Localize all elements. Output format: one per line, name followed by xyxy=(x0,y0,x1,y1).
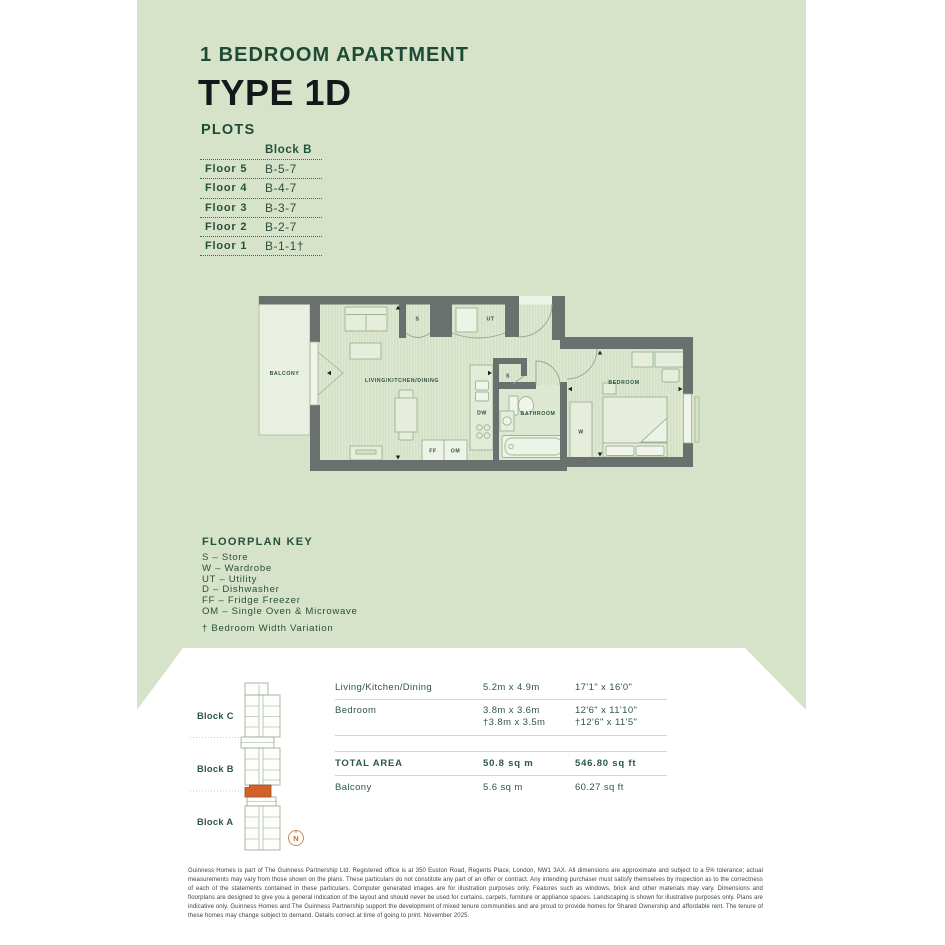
table-row: Floor 3 B-3-7 xyxy=(200,199,322,218)
balcony-door xyxy=(310,342,318,405)
apartment-subtitle: 1 BEDROOM APARTMENT xyxy=(200,44,469,67)
sink-bowl xyxy=(476,392,489,401)
table-row: Bedroom 3.8m x 3.6m †3.8m x 3.5m 12'6" x… xyxy=(335,700,667,736)
bedroom-label: BEDROOM xyxy=(608,380,639,386)
metric-line-1: 3.8m x 3.6m xyxy=(483,705,575,717)
imperial-dimension: 17'1" x 16'0" xyxy=(575,682,667,693)
coffee-table xyxy=(350,343,381,359)
imperial-dimension: 12'6" x 11'10" †12'6" x 11'5" xyxy=(575,705,667,729)
floor-label: Floor 4 xyxy=(200,182,265,194)
oven-microwave-label: OM xyxy=(451,449,461,455)
bathroom-label: BATHROOM xyxy=(521,411,556,417)
room-name: Living/Kitchen/Dining xyxy=(335,682,483,693)
balcony-imperial: 60.27 sq ft xyxy=(575,782,667,793)
metric-line-2: †3.8m x 3.5m xyxy=(483,717,575,729)
floor-label: Floor 1 xyxy=(200,240,265,252)
floor-label: Floor 2 xyxy=(200,221,265,233)
bathtub xyxy=(502,436,565,458)
balcony-label: Balcony xyxy=(335,782,483,793)
pillow xyxy=(606,446,634,456)
utility-label: UT xyxy=(486,317,494,323)
store-mid-label: S xyxy=(506,374,510,380)
living-label: LIVING/KITCHEN/DINING xyxy=(365,378,439,384)
highlighted-plot-unit xyxy=(245,785,271,797)
floorplan-key-title: FLOORPLAN KEY xyxy=(202,536,358,548)
dishwasher-label: DW xyxy=(477,411,487,417)
bedroom-width-variation-note: † Bedroom Width Variation xyxy=(202,623,358,634)
pillow xyxy=(636,446,664,456)
block-labels: Block C Block B Block A xyxy=(197,711,234,827)
legal-disclaimer: Guinness Homes is part of The Guinness P… xyxy=(188,867,763,920)
plots-header-row: Block B xyxy=(200,141,322,160)
fridge-freezer-label: FF xyxy=(429,449,437,455)
dining-table xyxy=(395,398,417,432)
table-row: Living/Kitchen/Dining 5.2m x 4.9m 17'1" … xyxy=(335,679,667,700)
plot-value: B-3-7 xyxy=(265,201,322,215)
floorplan-drawing: BALCONY LIVING/KITCHEN/DINING S UT S DW … xyxy=(250,285,710,485)
wardrobe-label: W xyxy=(578,430,584,436)
plots-heading: PLOTS xyxy=(201,122,255,138)
balcony-label: BALCONY xyxy=(270,371,300,377)
brochure-page: 1 BEDROOM APARTMENT TYPE 1D PLOTS Block … xyxy=(0,0,945,945)
north-compass-icon: N xyxy=(289,831,304,846)
tv xyxy=(356,450,376,454)
total-area-label: TOTAL AREA xyxy=(335,758,483,769)
site-plan-diagram: N Block C Block B Block A xyxy=(186,675,316,855)
table-row: Floor 5 B-5-7 xyxy=(200,160,322,179)
metric-dimension: 3.8m x 3.6m †3.8m x 3.5m xyxy=(483,705,575,729)
key-item: OM – Single Oven & Microwave xyxy=(202,607,358,618)
store-top-label: S xyxy=(415,317,419,323)
building-outline xyxy=(241,683,280,850)
juliet-balustrade xyxy=(695,397,699,442)
plot-value: B-4-7 xyxy=(265,181,322,195)
plot-value: B-1-1† xyxy=(265,239,322,253)
desk xyxy=(655,352,686,367)
dimensions-table: Living/Kitchen/Dining 5.2m x 4.9m 17'1" … xyxy=(335,679,667,799)
page-title: TYPE 1D xyxy=(198,72,352,114)
key-item: W – Wardrobe xyxy=(202,564,358,575)
plot-value: B-2-7 xyxy=(265,220,322,234)
total-area-metric: 50.8 sq m xyxy=(483,758,575,769)
imperial-line-2: †12'6" x 11'5" xyxy=(575,717,667,729)
metric-dimension: 5.2m x 4.9m xyxy=(483,682,575,693)
balcony-metric: 5.6 sq m xyxy=(483,782,575,793)
floorplan-key: FLOORPLAN KEY S – Store W – Wardrobe UT … xyxy=(202,536,358,634)
drawers xyxy=(632,352,653,367)
desk-chair xyxy=(662,369,679,382)
imperial-line-1: 12'6" x 11'10" xyxy=(575,705,667,717)
table-row: Floor 4 B-4-7 xyxy=(200,179,322,198)
plot-value: B-5-7 xyxy=(265,162,322,176)
block-a-label: Block A xyxy=(197,817,233,827)
block-c-label: Block C xyxy=(197,711,234,721)
compass-n-label: N xyxy=(293,834,298,843)
plots-table: Block B Floor 5 B-5-7 Floor 4 B-4-7 Floo… xyxy=(200,141,322,256)
total-area-imperial: 546.80 sq ft xyxy=(575,758,667,769)
balcony-row: Balcony 5.6 sq m 60.27 sq ft xyxy=(335,776,667,799)
plots-column-header: Block B xyxy=(265,144,322,156)
entry-threshold xyxy=(519,296,552,305)
table-spacer xyxy=(335,736,667,751)
sink-bowl xyxy=(476,381,489,390)
floor-label: Floor 3 xyxy=(200,202,265,214)
table-row: Floor 2 B-2-7 xyxy=(200,218,322,237)
washing-machine xyxy=(456,308,477,332)
basin xyxy=(503,417,511,425)
bedroom-window xyxy=(684,394,692,443)
floor-label: Floor 5 xyxy=(200,163,265,175)
block-b-label: Block B xyxy=(197,764,234,774)
room-name: Bedroom xyxy=(335,705,483,729)
total-area-row: TOTAL AREA 50.8 sq m 546.80 sq ft xyxy=(335,751,667,776)
balcony-floor xyxy=(259,297,310,435)
table-row: Floor 1 B-1-1† xyxy=(200,237,322,256)
floorplan-key-items: S – Store W – Wardrobe UT – Utility D – … xyxy=(202,553,358,618)
